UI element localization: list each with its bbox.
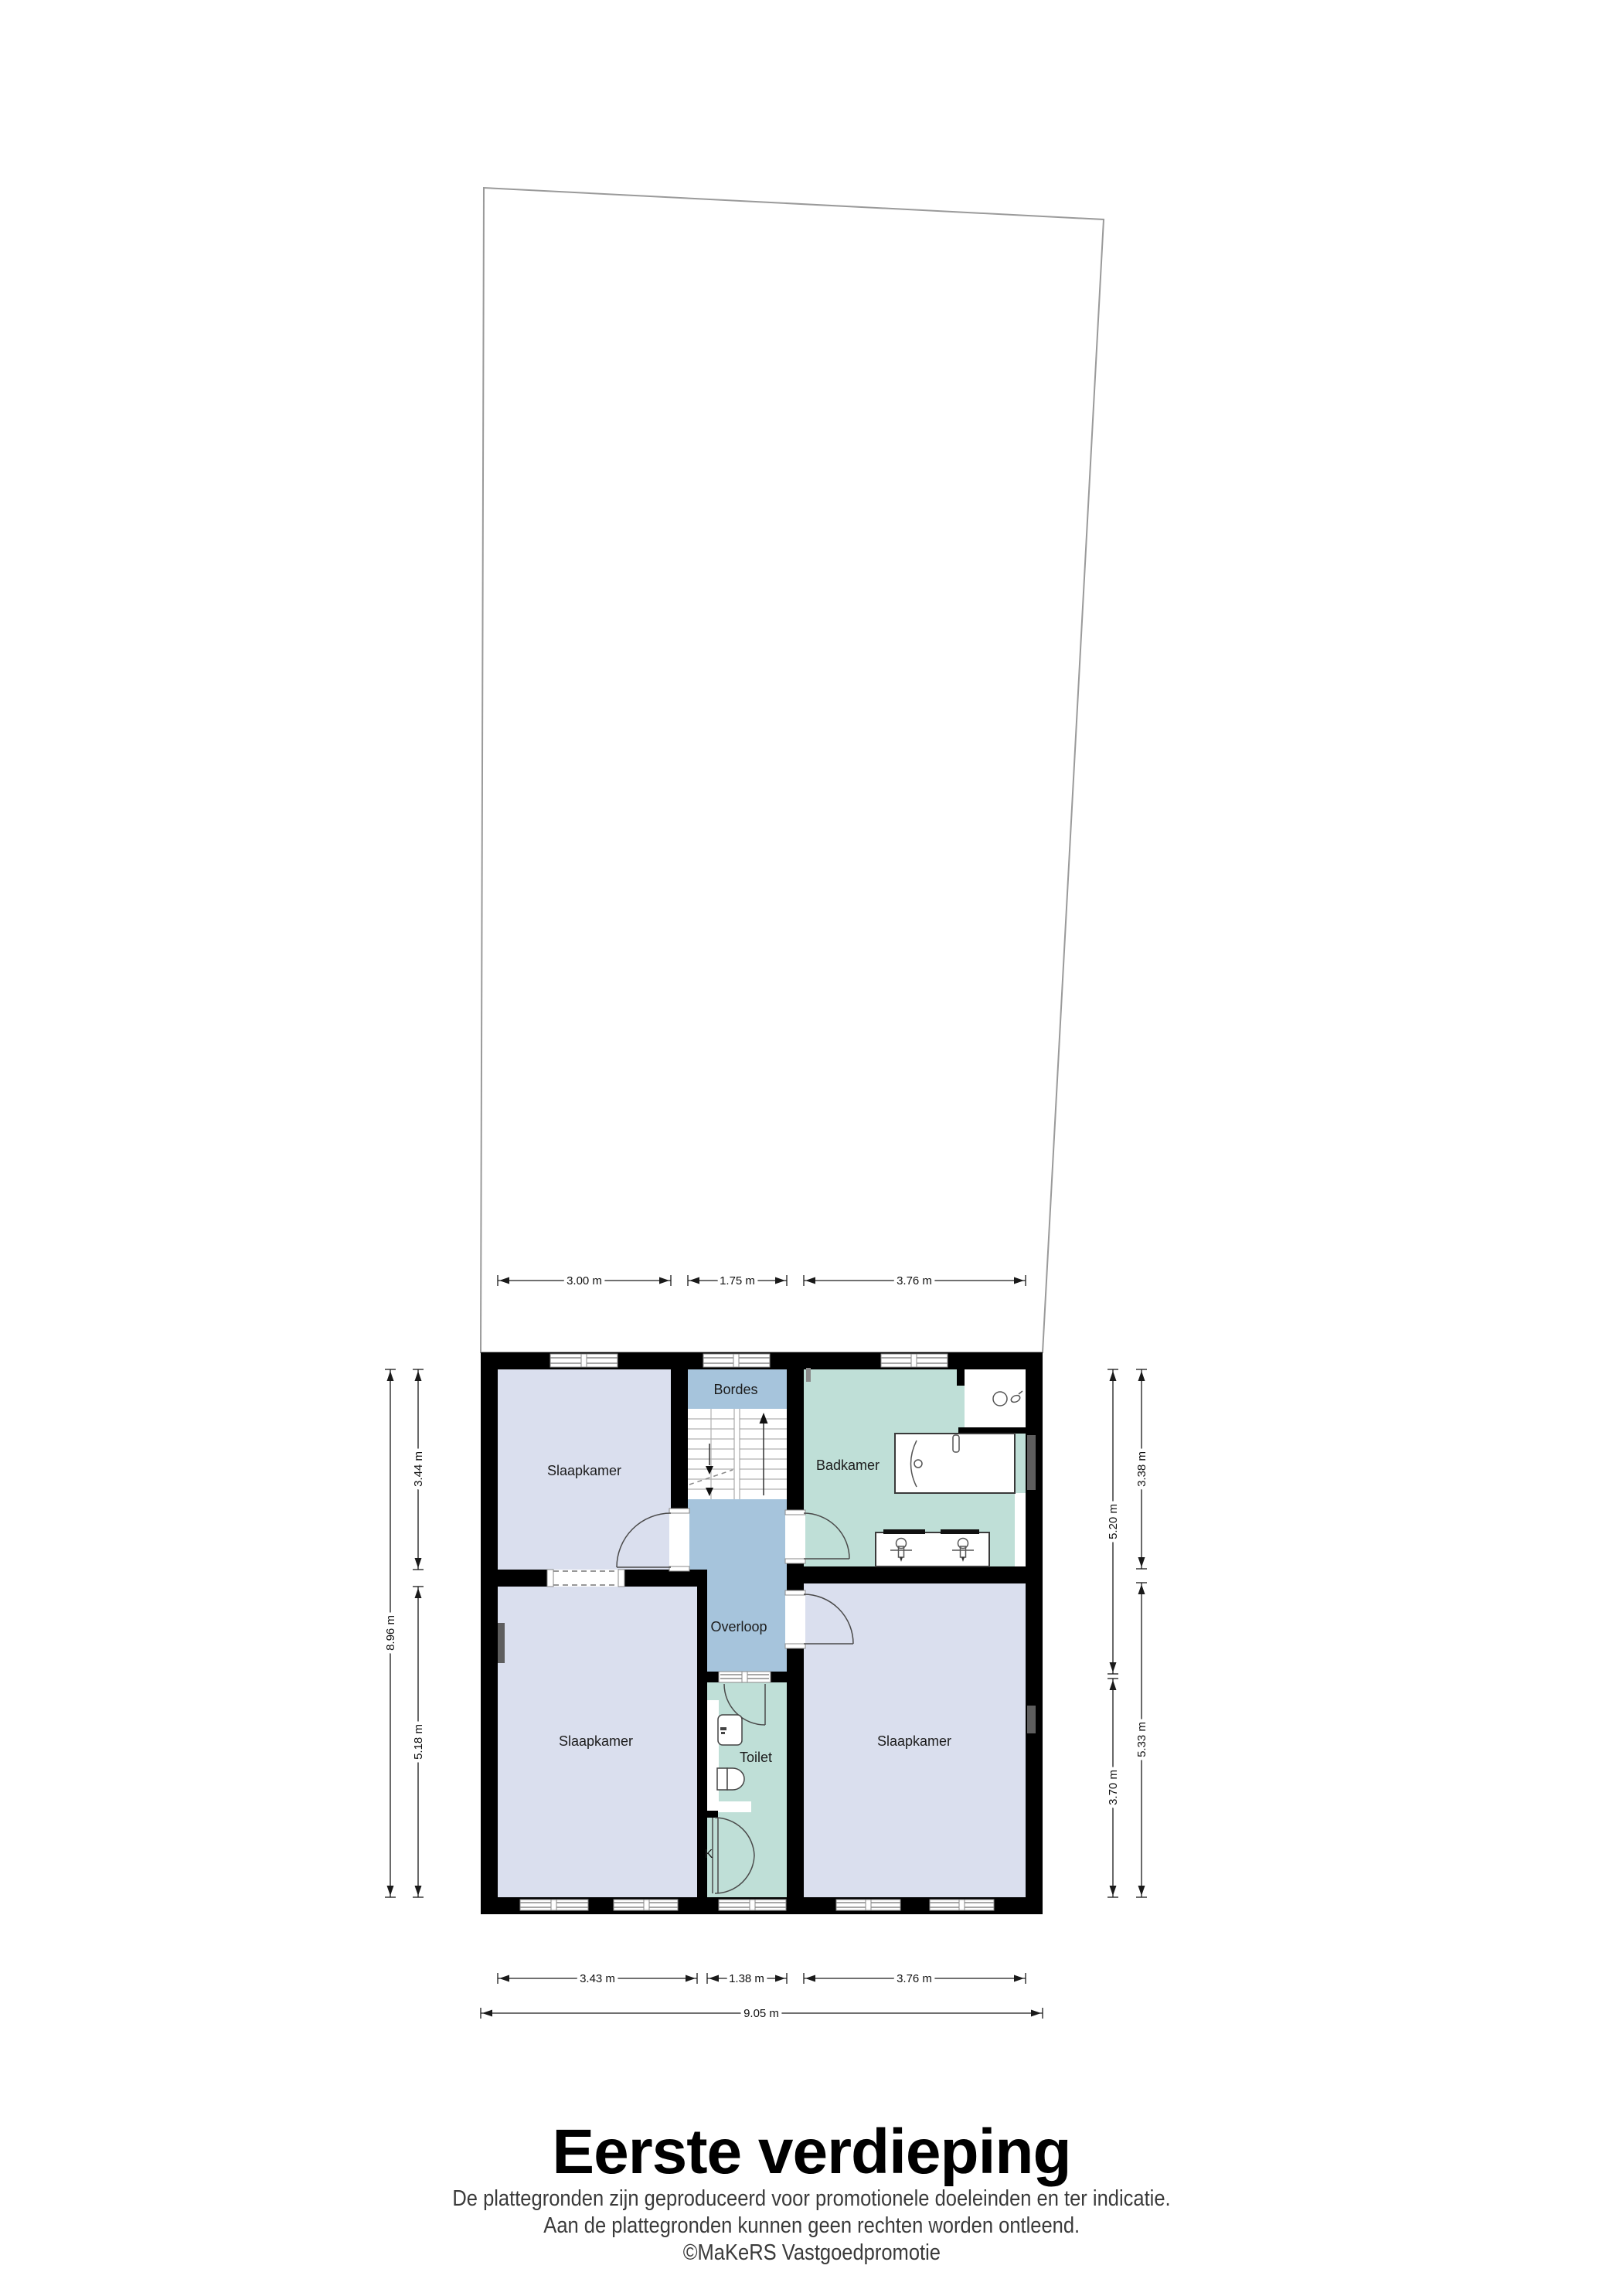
label-overloop: Overloop [710, 1619, 767, 1634]
label-slaapkamer-bottomright: Slaapkamer [877, 1733, 951, 1749]
window-icon [836, 1900, 900, 1910]
windows-top [550, 1354, 948, 1367]
window-icon [703, 1354, 770, 1367]
disclaimer: De plattegronden zijn geproduceerd voor … [0, 2185, 1623, 2267]
window-recess-right-bedroom [1027, 1706, 1036, 1733]
window-recess-right-badkamer [1027, 1435, 1036, 1490]
dim-total-width: 9.05 m [481, 2007, 1043, 2020]
window-recess-left [498, 1623, 505, 1663]
room-overloop-upper [688, 1499, 787, 1570]
dim-left-outer: 8.96 m [384, 1369, 397, 1897]
dim-left-inner-2: 5.18 m [412, 1587, 425, 1897]
page-title: Eerste verdieping [0, 2116, 1623, 2189]
wall-below-badkamer [787, 1566, 1043, 1583]
svg-text:3.38 m: 3.38 m [1135, 1451, 1148, 1487]
wall-shower-stub [957, 1369, 965, 1386]
dim-left-inner-1: 3.44 m [412, 1369, 425, 1570]
wall-toilet-stub [707, 1811, 718, 1818]
svg-text:1.38 m: 1.38 m [729, 1972, 764, 1985]
shower-niche-floor [965, 1369, 1026, 1427]
dashed-wall-opening [547, 1570, 624, 1587]
credit-line: ©MaKeRS Vastgoedpromotie [682, 2240, 940, 2267]
svg-text:3.70 m: 3.70 m [1107, 1770, 1120, 1805]
stair-flight-divider [734, 1409, 740, 1499]
dim-bottom-3: 3.76 m [804, 1972, 1026, 1985]
label-toilet: Toilet [740, 1750, 772, 1765]
svg-text:3.76 m: 3.76 m [897, 1274, 932, 1287]
glazed-partition [719, 1672, 771, 1682]
label-slaapkamer-topleft: Slaapkamer [547, 1463, 621, 1478]
disclaimer-line-1: De plattegronden zijn geproduceerd voor … [452, 2185, 1170, 2213]
svg-text:5.18 m: 5.18 m [412, 1724, 425, 1760]
plot-outline [481, 188, 1104, 1352]
label-bordes: Bordes [713, 1382, 757, 1397]
svg-text:8.96 m: 8.96 m [384, 1615, 397, 1651]
door-opening [669, 1509, 689, 1571]
window-icon [719, 1900, 786, 1910]
badkamer-side-strip [1015, 1493, 1026, 1566]
wall-shower-bottom [958, 1427, 1026, 1434]
floorplan-drawing: Slaapkamer Bordes Badkamer Overloop Slaa… [0, 0, 1623, 2296]
dim-right-inner-2: 3.70 m [1107, 1679, 1120, 1897]
label-badkamer: Badkamer [816, 1458, 880, 1473]
disclaimer-line-2: Aan de plattegronden kunnen geen rechten… [543, 2213, 1080, 2240]
dim-right-outer-1: 3.38 m [1135, 1369, 1148, 1569]
window-icon [520, 1900, 588, 1910]
door-opening [785, 1510, 805, 1563]
window-icon [550, 1354, 618, 1367]
wall-partition-stub-left [707, 1672, 719, 1682]
vent-stub [806, 1368, 811, 1382]
svg-text:1.75 m: 1.75 m [720, 1274, 755, 1287]
label-slaapkamer-bottomleft: Slaapkamer [559, 1733, 633, 1749]
dim-bottom-2: 1.38 m [707, 1972, 787, 1985]
window-icon [614, 1900, 678, 1910]
wall-left [481, 1352, 498, 1914]
dim-right-inner-1: 5.20 m [1107, 1369, 1120, 1674]
vanity-double-sink [876, 1529, 989, 1566]
svg-text:3.76 m: 3.76 m [897, 1972, 932, 1985]
dim-right-outer-2: 5.33 m [1135, 1583, 1148, 1897]
window-icon [881, 1354, 948, 1367]
floorplan-page: Slaapkamer Bordes Badkamer Overloop Slaa… [0, 0, 1623, 2296]
svg-text:5.20 m: 5.20 m [1107, 1504, 1120, 1539]
svg-text:3.43 m: 3.43 m [580, 1972, 615, 1985]
svg-text:9.05 m: 9.05 m [743, 2007, 779, 2020]
svg-text:3.00 m: 3.00 m [567, 1274, 602, 1287]
toilet-icon [717, 1768, 744, 1790]
hand-basin-icon [718, 1715, 742, 1745]
svg-text:5.33 m: 5.33 m [1135, 1722, 1148, 1757]
door-opening [785, 1590, 805, 1648]
bathtub-icon [895, 1434, 1015, 1493]
svg-text:3.44 m: 3.44 m [412, 1451, 425, 1487]
window-icon [930, 1900, 994, 1910]
wall-partition-stub-right [771, 1672, 787, 1682]
dim-bottom-1: 3.43 m [498, 1972, 697, 1985]
label-kast: K [705, 1848, 713, 1861]
